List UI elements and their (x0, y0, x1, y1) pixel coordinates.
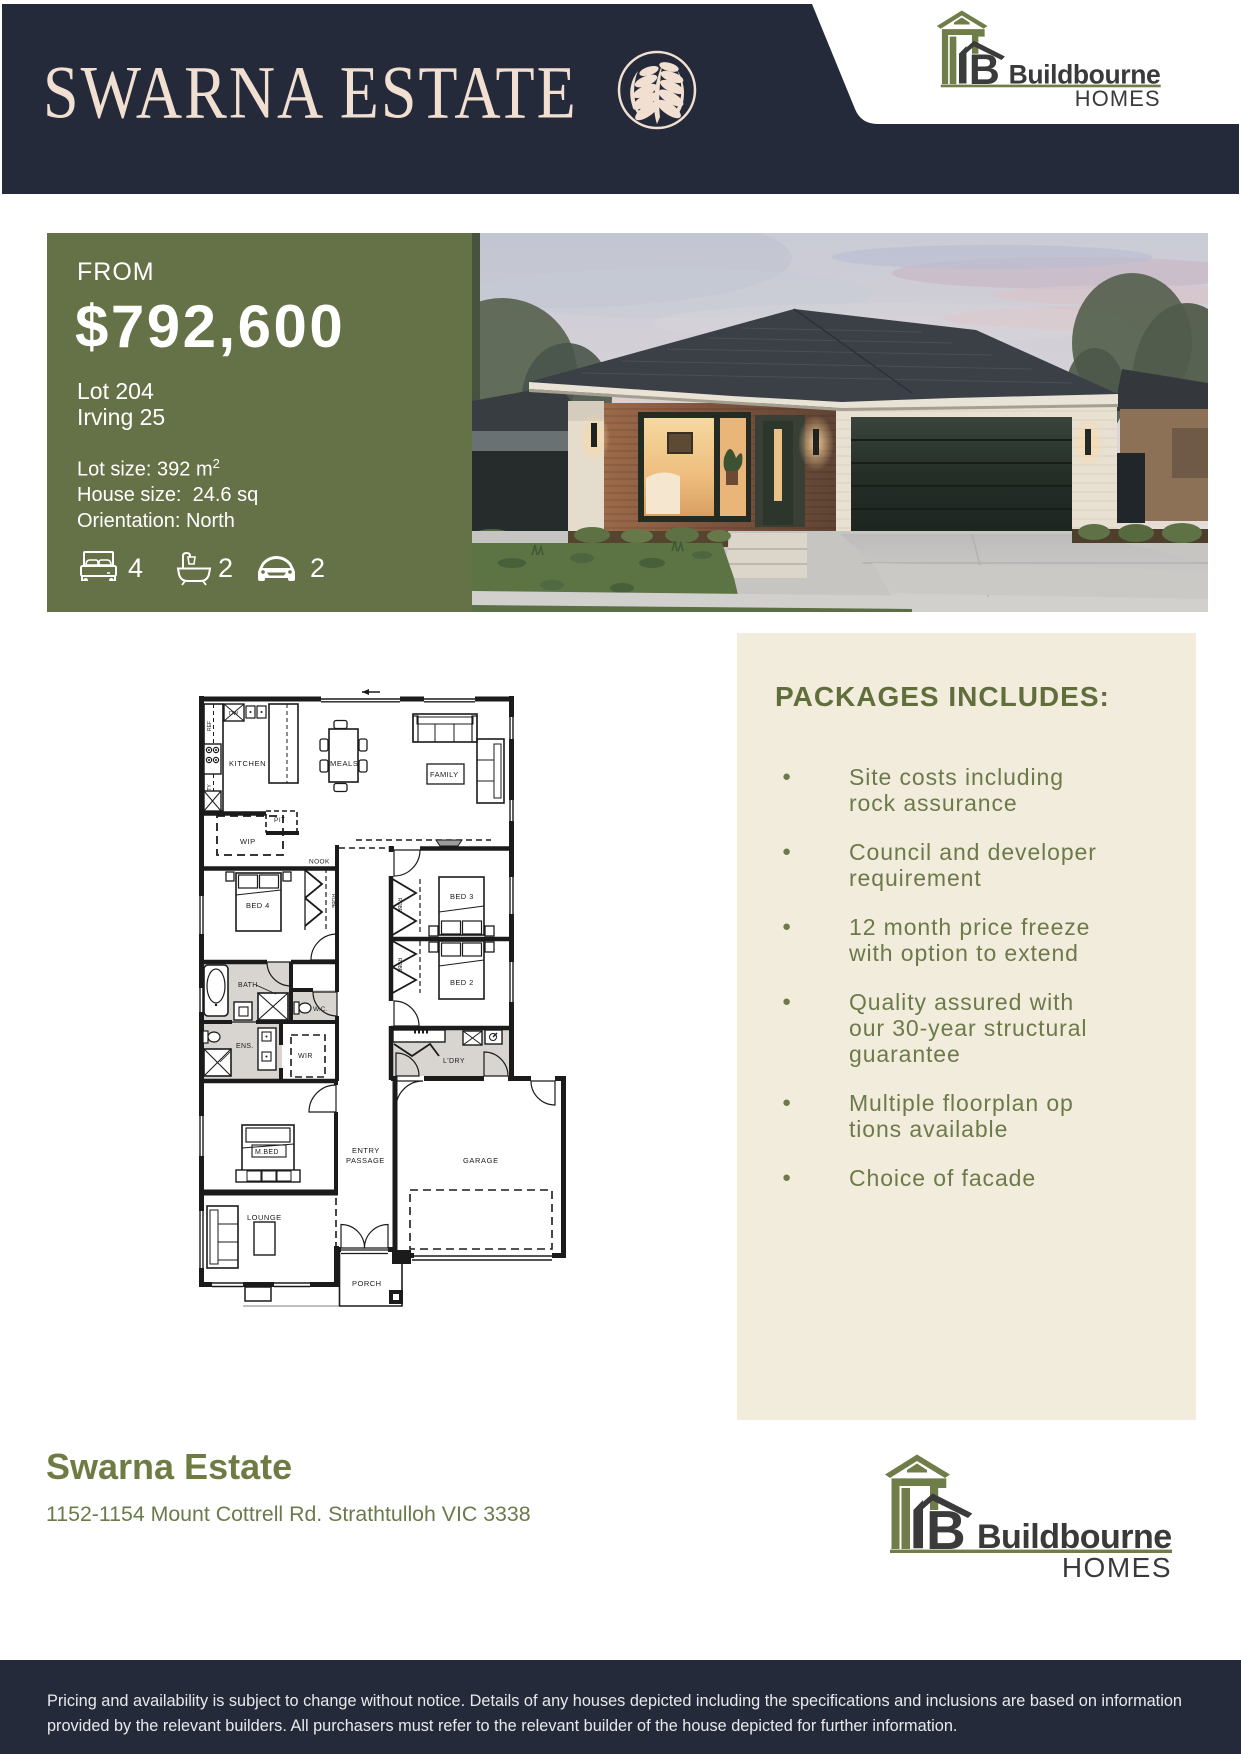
svg-text:BED 4: BED 4 (246, 901, 270, 910)
svg-text:L'DRY: L'DRY (443, 1058, 465, 1065)
svg-text:W.C.: W.C. (313, 1006, 327, 1013)
svg-text:REF: REF (207, 721, 213, 731)
svg-text:BED 2: BED 2 (450, 978, 474, 987)
svg-text:ROBE: ROBE (330, 894, 336, 909)
svg-text:BED 3: BED 3 (450, 892, 474, 901)
svg-text:WIR: WIR (298, 1053, 313, 1060)
svg-text:MEALS: MEALS (330, 759, 358, 768)
svg-text:LOUNGE: LOUNGE (247, 1213, 282, 1222)
svg-text:KITCHEN: KITCHEN (229, 759, 266, 768)
svg-text:FAMILY: FAMILY (430, 770, 459, 779)
svg-text:WIP: WIP (240, 837, 256, 846)
svg-text:NOOK: NOOK (309, 859, 330, 866)
svg-text:GARAGE: GARAGE (463, 1156, 499, 1165)
svg-text:ROBE: ROBE (396, 958, 402, 973)
svg-text:PASSAGE: PASSAGE (346, 1156, 385, 1165)
svg-text:M.BED: M.BED (255, 1149, 279, 1156)
svg-text:ENTRY: ENTRY (352, 1146, 380, 1155)
svg-text:ENS.: ENS. (236, 1043, 254, 1050)
svg-text:ROBE: ROBE (396, 898, 402, 913)
svg-text:DW: DW (229, 711, 239, 717)
svg-text:PORCH: PORCH (352, 1279, 382, 1288)
svg-text:BATH: BATH (238, 982, 258, 989)
